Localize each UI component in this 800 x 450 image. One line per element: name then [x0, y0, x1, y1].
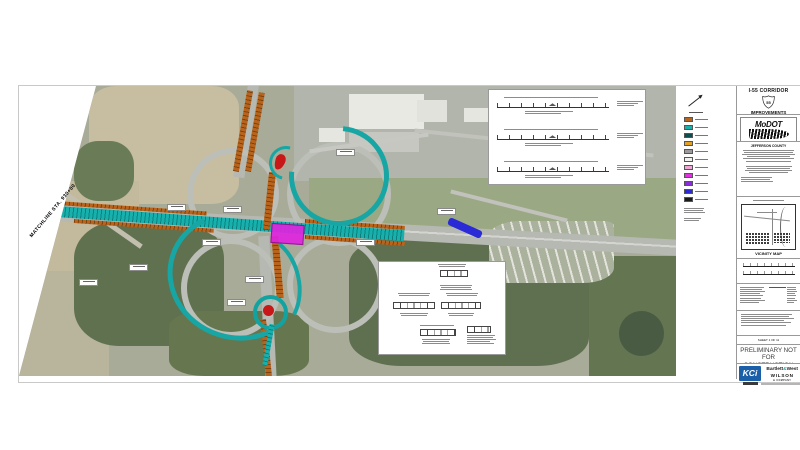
section-line — [497, 132, 609, 140]
legend-footnote — [684, 207, 706, 214]
section-caption — [447, 312, 475, 317]
typical-section-row — [495, 160, 643, 188]
legend-label — [695, 135, 708, 136]
legend-swatch — [684, 173, 693, 178]
project-description-text — [741, 176, 775, 183]
legend-item — [684, 141, 710, 146]
kci-logo-bar — [743, 382, 758, 385]
vicinity-map-label: VICINITY MAP — [737, 251, 800, 256]
sheet-number: SHEET 1 OF 11 — [737, 336, 800, 344]
section-leader-notes — [525, 142, 585, 147]
vicinity-map — [741, 204, 796, 250]
section-bar — [393, 302, 435, 309]
section-notes — [467, 334, 497, 346]
legend-item — [684, 197, 710, 202]
section-title — [617, 100, 643, 107]
section-title — [617, 132, 643, 139]
legend-item — [684, 157, 710, 162]
county-label: JEFFERSON COUNTY — [737, 144, 800, 148]
legend-item — [684, 189, 710, 194]
plan-sheet: MATCHLINE STA. 930+00 I-55 CORRIDOR — [18, 85, 800, 383]
typical-sections-inset-top — [488, 89, 646, 185]
legend-swatch — [684, 165, 693, 170]
legend-label — [695, 119, 708, 120]
typical-section-row — [495, 128, 643, 156]
legend-item — [684, 173, 710, 178]
quantities-table-block — [737, 284, 800, 311]
legend-label — [695, 175, 708, 176]
pond — [619, 311, 664, 356]
vicinity-map-note — [752, 199, 786, 202]
section-caption — [397, 292, 431, 297]
typical-section-row — [495, 96, 643, 124]
legend-title — [688, 111, 704, 114]
road-label-box — [223, 206, 242, 213]
urban-hatch — [746, 233, 770, 245]
legend — [682, 89, 710, 219]
legend-label — [695, 151, 708, 152]
road-label-box — [356, 239, 375, 246]
road-label-box — [79, 279, 98, 286]
section-line — [497, 164, 609, 172]
legend-item — [684, 149, 710, 154]
kci-logo: KCi — [739, 366, 761, 381]
legend-item — [684, 181, 710, 186]
legend-swatch — [684, 189, 693, 194]
table-rows-labels — [740, 286, 766, 304]
legend-swatch — [684, 117, 693, 122]
legend-item — [684, 165, 710, 170]
interstate-shield-icon: 55 — [762, 95, 775, 109]
section-bar — [420, 329, 456, 336]
roundabout-center-island — [263, 305, 274, 316]
section-line — [497, 100, 609, 108]
project-title-block: I-55 CORRIDOR 55 IMPROVEMENTS — [737, 86, 800, 115]
legend-swatch — [684, 149, 693, 154]
section-caption — [421, 338, 451, 345]
legend-label — [695, 167, 708, 168]
legend-label — [695, 143, 708, 144]
notes-block — [737, 311, 800, 336]
plot-stamp-line — [761, 383, 800, 385]
legend-swatch — [684, 157, 693, 162]
road-label-box — [227, 299, 246, 306]
status-line2: FOR CONSTRUCTION — [737, 354, 800, 364]
vicinity-map-text — [756, 211, 778, 214]
building — [417, 100, 447, 122]
section-caption — [439, 284, 473, 291]
road-label-box — [336, 149, 355, 156]
road-label-box — [129, 264, 148, 271]
road-label-box — [202, 239, 221, 246]
legend-label — [695, 199, 708, 200]
legend-swatch — [684, 181, 693, 186]
section-title — [617, 164, 643, 171]
legend-label — [695, 127, 708, 128]
notes-text — [741, 313, 797, 327]
section-caption — [445, 292, 479, 297]
road-label-box — [437, 208, 456, 215]
road-label-box — [167, 204, 186, 211]
legend-footnote — [684, 217, 702, 222]
agency-logo-block: MoDOT — [737, 115, 800, 142]
woods-patch — [74, 141, 134, 201]
legend-item — [684, 125, 710, 130]
county-description-block: JEFFERSON COUNTY — [737, 142, 800, 197]
legend-item — [684, 133, 710, 138]
north-arrow-icon — [686, 93, 702, 109]
legend-swatch — [684, 133, 693, 138]
road-label-box — [245, 276, 264, 283]
vicinity-map-block: VICINITY MAP — [737, 197, 800, 259]
project-description-text — [741, 149, 797, 163]
project-title-line1: I-55 CORRIDOR — [737, 88, 800, 94]
section-caption — [399, 312, 429, 317]
vicinity-road — [772, 209, 773, 245]
legend-swatch — [684, 197, 693, 202]
legend-swatch — [684, 141, 693, 146]
project-description-text — [744, 165, 794, 174]
section-leader-notes — [525, 174, 585, 179]
modot-logo: MoDOT — [741, 120, 796, 129]
section-leader-notes — [525, 110, 585, 115]
sheet-number-block: SHEET 1 OF 11 — [737, 336, 800, 345]
legend-swatch — [684, 125, 693, 130]
shield-route-number: 55 — [762, 100, 775, 105]
section-dimensions — [501, 96, 601, 99]
legend-item — [684, 117, 710, 122]
section-dimensions — [501, 128, 601, 131]
status-block: PRELIMINARY NOT FOR CONSTRUCTION — [737, 345, 800, 364]
section-bar — [440, 270, 468, 277]
building — [349, 94, 424, 129]
section-bar — [467, 326, 491, 333]
bartlett-west-logo: Bartlett&West — [766, 367, 798, 373]
bridge-overlay — [270, 223, 304, 245]
section-caption — [437, 263, 467, 268]
table-rows-values — [787, 286, 797, 304]
status-line1: PRELIMINARY NOT — [737, 347, 800, 355]
modot-swoosh-icon — [749, 129, 789, 139]
mini-section-line — [743, 261, 795, 267]
section-bar — [441, 302, 481, 309]
building — [464, 108, 488, 122]
mini-sections-block — [737, 259, 800, 284]
legend-label — [695, 183, 708, 184]
section-dimensions — [501, 160, 601, 163]
legend-label — [695, 191, 708, 192]
urban-hatch — [774, 233, 790, 243]
legend-label — [695, 159, 708, 160]
typical-sections-inset-bottom — [378, 261, 506, 355]
title-block: I-55 CORRIDOR 55 IMPROVEMENTS MoDOT JEFF… — [736, 86, 800, 379]
section-caption — [419, 324, 455, 327]
mini-section-line — [743, 269, 795, 275]
table-header — [769, 286, 787, 289]
